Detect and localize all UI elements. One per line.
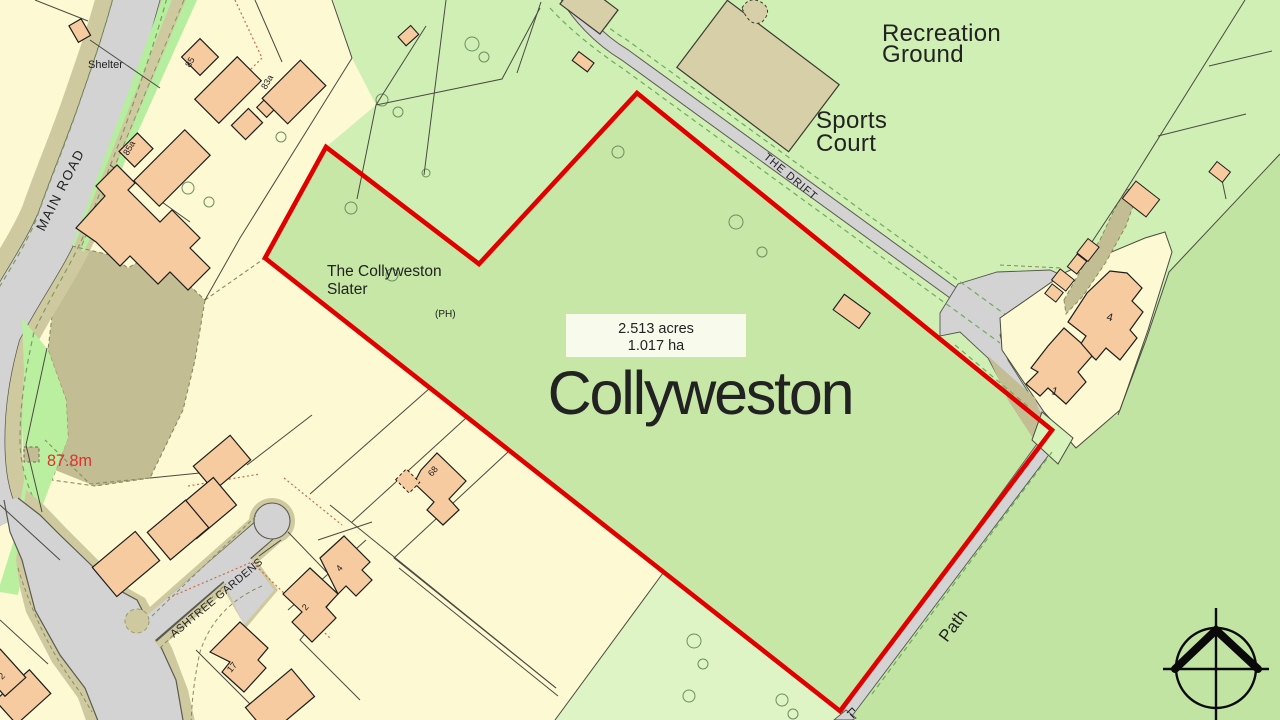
svg-text:(PH): (PH) — [435, 309, 456, 320]
svg-text:Shelter: Shelter — [88, 59, 123, 71]
svg-text:Court: Court — [816, 130, 876, 157]
svg-text:87.8m: 87.8m — [47, 452, 92, 470]
svg-text:Ground: Ground — [882, 41, 964, 68]
svg-text:1.017 ha: 1.017 ha — [628, 338, 685, 354]
svg-text:The Collyweston: The Collyweston — [327, 263, 442, 280]
svg-text:Slater: Slater — [327, 281, 368, 298]
svg-text:2.513 acres: 2.513 acres — [618, 321, 694, 337]
svg-text:Collyweston: Collyweston — [548, 359, 853, 427]
